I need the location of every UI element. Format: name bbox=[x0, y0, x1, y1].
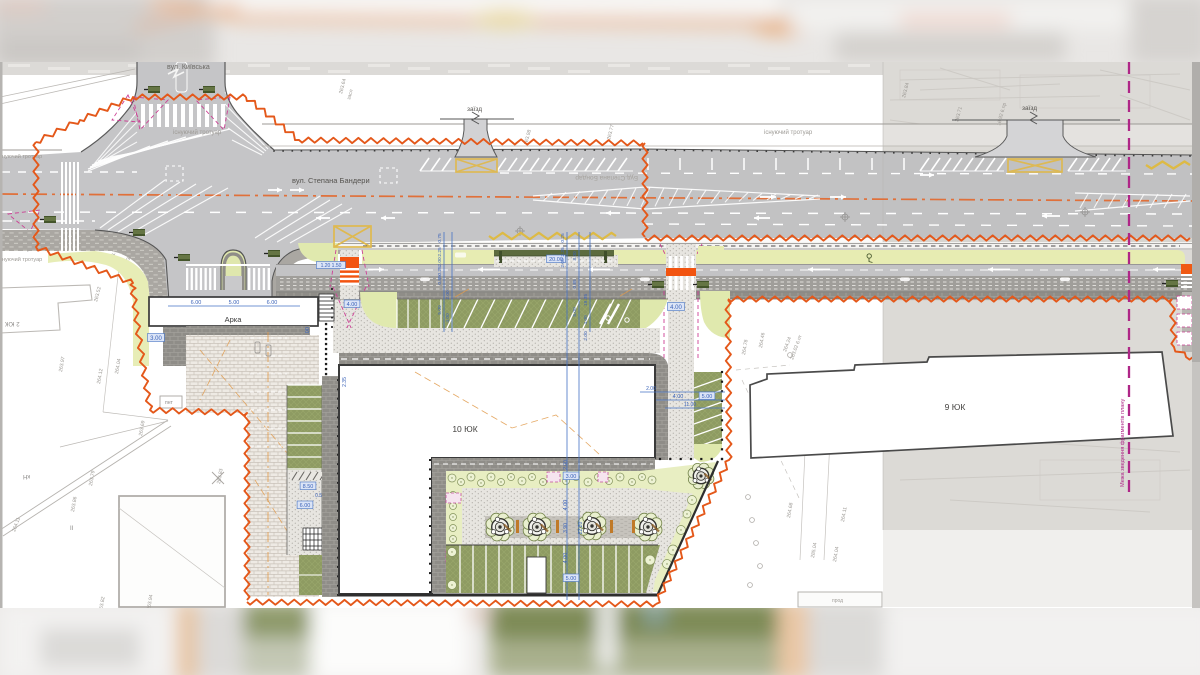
svg-text:заїзд: заїзд bbox=[1022, 105, 1037, 112]
svg-text:0.75: 0.75 bbox=[437, 233, 443, 243]
svg-text:II: II bbox=[70, 526, 74, 532]
svg-text:5.00: 5.00 bbox=[572, 307, 578, 317]
svg-text:3.00: 3.00 bbox=[566, 474, 577, 480]
svg-text:2.00: 2.00 bbox=[437, 257, 443, 267]
svg-text:вул. Київська: вул. Київська bbox=[167, 64, 210, 71]
svg-text:22.20: 22.20 bbox=[578, 522, 584, 535]
svg-text:2.25: 2.25 bbox=[560, 247, 566, 257]
svg-text:0.25: 0.25 bbox=[560, 233, 566, 243]
svg-text:4.00: 4.00 bbox=[583, 315, 589, 325]
svg-text:вул. Степана Бандери: вул. Степана Бандери bbox=[292, 176, 370, 185]
svg-text:Арка: Арка bbox=[225, 315, 243, 324]
svg-text:3.90: 3.90 bbox=[563, 523, 569, 533]
svg-text:2.00: 2.00 bbox=[445, 290, 451, 300]
svg-text:4.00: 4.00 bbox=[563, 500, 569, 511]
svg-text:існуючий тротуар: існуючий тротуар bbox=[764, 129, 813, 136]
svg-text:5.00: 5.00 bbox=[229, 300, 240, 306]
svg-text:4.00: 4.00 bbox=[563, 553, 569, 564]
svg-text:6.00: 6.00 bbox=[267, 300, 278, 306]
svg-text:Буд.Степана Бондар: Буд.Степана Бондар bbox=[575, 174, 638, 181]
svg-text:2.00: 2.00 bbox=[646, 386, 656, 392]
svg-text:4.00: 4.00 bbox=[445, 313, 451, 323]
svg-text:9 ЮК: 9 ЮК bbox=[945, 402, 966, 412]
svg-text:19.35: 19.35 bbox=[583, 294, 589, 306]
svg-text:нуючий тротуар: нуючий тротуар bbox=[2, 256, 42, 263]
svg-text:4.00: 4.00 bbox=[347, 302, 358, 308]
svg-text:11.00: 11.00 bbox=[684, 402, 696, 408]
svg-text:існуючий тротуар: існуючий тротуар bbox=[173, 129, 222, 136]
svg-text:6.00: 6.00 bbox=[191, 300, 202, 306]
svg-text:0.85: 0.85 bbox=[572, 279, 578, 289]
svg-text:0.25: 0.25 bbox=[437, 266, 443, 276]
svg-text:Межа зведення фрагментів плану: Межа зведення фрагментів плану bbox=[1120, 398, 1126, 487]
svg-text:5.00: 5.00 bbox=[702, 394, 713, 400]
svg-text:2 ЮК: 2 ЮК bbox=[4, 320, 19, 326]
svg-text:10 ЮК: 10 ЮК bbox=[452, 424, 477, 434]
svg-text:3.00: 3.00 bbox=[150, 336, 162, 342]
svg-text:4.00: 4.00 bbox=[670, 305, 682, 311]
svg-text:пнт: пнт bbox=[165, 400, 173, 406]
svg-text:5.00: 5.00 bbox=[566, 576, 577, 582]
svg-text:3.00: 3.00 bbox=[572, 251, 578, 261]
svg-text:6.00: 6.00 bbox=[300, 503, 311, 509]
svg-text:2.25: 2.25 bbox=[437, 247, 443, 257]
svg-text:1.20 1.50: 1.20 1.50 bbox=[321, 263, 342, 269]
svg-text:заїзд: заїзд bbox=[467, 106, 482, 113]
svg-text:8.50: 8.50 bbox=[303, 484, 314, 490]
svg-text:2.00: 2.00 bbox=[583, 331, 589, 341]
svg-text:4.00: 4.00 bbox=[673, 394, 684, 400]
svg-text:0.85: 0.85 bbox=[437, 275, 443, 285]
svg-text:прод: прод bbox=[832, 598, 843, 604]
svg-text:2.00: 2.00 bbox=[563, 460, 569, 470]
svg-text:2.35: 2.35 bbox=[342, 377, 348, 387]
svg-text:кН: кН bbox=[23, 473, 30, 479]
svg-text:2.00: 2.00 bbox=[560, 258, 566, 268]
svg-text:5.00: 5.00 bbox=[437, 305, 443, 315]
